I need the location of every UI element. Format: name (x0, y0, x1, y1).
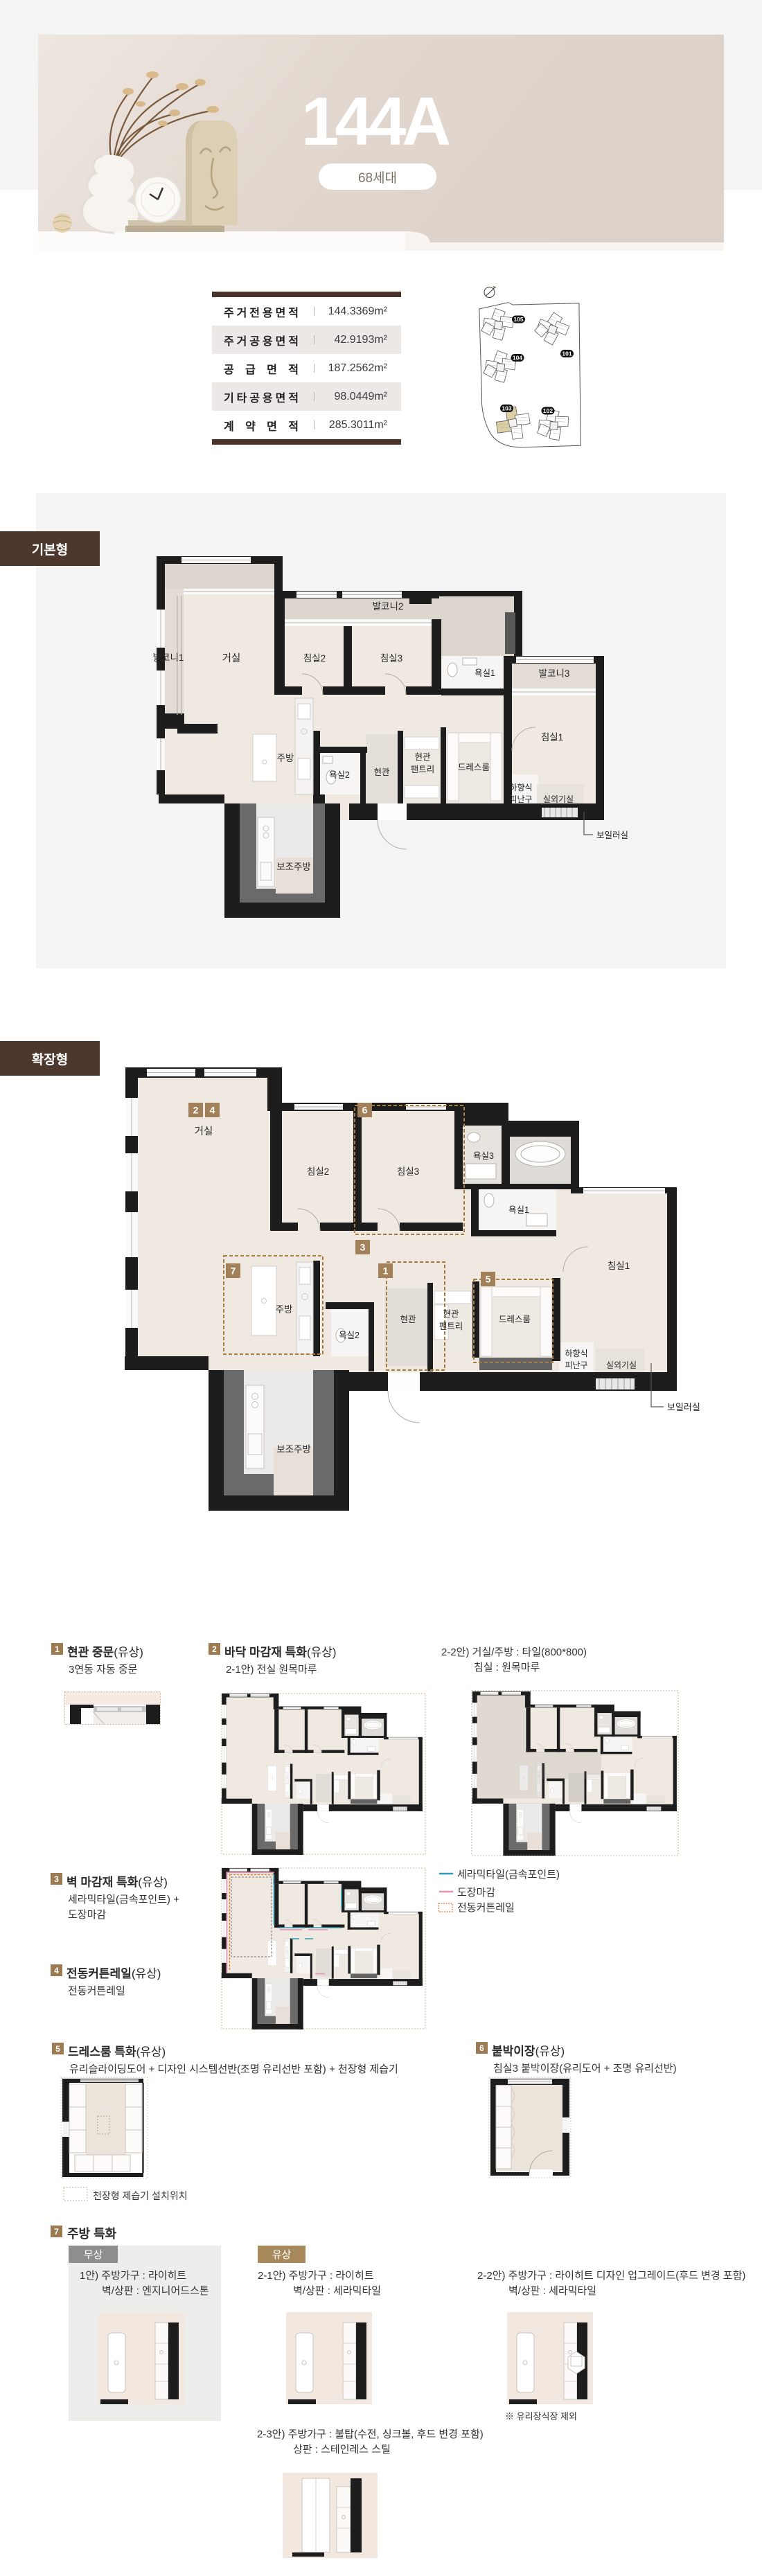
svg-text:2: 2 (193, 1105, 199, 1116)
svg-text:침실1: 침실1 (608, 1261, 630, 1271)
svg-text:현관: 현관 (400, 1315, 416, 1324)
svg-text:팬트리: 팬트리 (411, 765, 435, 774)
svg-text:드레스룸: 드레스룸 (499, 1315, 531, 1324)
svg-text:팬트리: 팬트리 (439, 1322, 463, 1331)
svg-text:보조주방: 보조주방 (276, 1444, 311, 1455)
svg-text:104: 104 (513, 355, 522, 362)
svg-text:드레스룸: 드레스룸 (458, 763, 490, 772)
svg-text:침실3: 침실3 (397, 1166, 419, 1177)
svg-text:하향식: 하향식 (565, 1349, 587, 1358)
svg-text:전동커튼레일: 전동커튼레일 (457, 1902, 515, 1914)
svg-text:하향식: 하향식 (509, 783, 532, 792)
svg-text:피난구: 피난구 (509, 794, 532, 804)
svg-text:실외기실: 실외기실 (606, 1360, 637, 1370)
svg-text:1: 1 (383, 1265, 389, 1277)
svg-text:욕실2: 욕실2 (339, 1331, 360, 1340)
svg-text:발코니3: 발코니3 (539, 668, 570, 679)
svg-text:4: 4 (210, 1105, 215, 1116)
svg-text:현관: 현관 (443, 1309, 459, 1319)
svg-text:105: 105 (513, 316, 523, 323)
svg-text:침실2: 침실2 (303, 653, 326, 664)
svg-text:103: 103 (502, 405, 511, 412)
svg-text:침실1: 침실1 (541, 732, 563, 743)
svg-text:거실: 거실 (195, 1126, 213, 1137)
svg-text:욕실2: 욕실2 (329, 770, 350, 780)
svg-text:6: 6 (362, 1105, 368, 1116)
svg-text:101: 101 (562, 350, 571, 357)
svg-text:거실: 거실 (222, 652, 241, 664)
svg-text:발코니1: 발코니1 (153, 652, 184, 663)
svg-text:보일러실: 보일러실 (667, 1402, 700, 1412)
svg-text:발코니2: 발코니2 (373, 601, 404, 612)
svg-text:실외기실: 실외기실 (543, 794, 574, 804)
svg-text:주방: 주방 (276, 1304, 293, 1315)
svg-text:침실3: 침실3 (380, 653, 402, 664)
svg-text:침실2: 침실2 (307, 1166, 329, 1177)
svg-text:보일러실: 보일러실 (596, 830, 628, 840)
svg-text:주방: 주방 (277, 753, 294, 763)
svg-text:102: 102 (543, 407, 553, 414)
svg-text:도장마감: 도장마감 (457, 1887, 495, 1899)
svg-text:3: 3 (360, 1242, 366, 1253)
svg-text:보조주방: 보조주방 (276, 862, 311, 872)
svg-text:현관: 현관 (373, 767, 390, 777)
svg-text:7: 7 (231, 1265, 236, 1277)
svg-text:욕실1: 욕실1 (508, 1205, 529, 1215)
svg-text:5: 5 (486, 1274, 491, 1285)
svg-text:피난구: 피난구 (565, 1360, 587, 1370)
svg-text:욕실3: 욕실3 (473, 1151, 494, 1161)
svg-text:욕실1: 욕실1 (475, 668, 495, 678)
svg-text:세라믹타일(금속포인트): 세라믹타일(금속포인트) (457, 1869, 560, 1881)
svg-text:현관: 현관 (414, 752, 431, 762)
